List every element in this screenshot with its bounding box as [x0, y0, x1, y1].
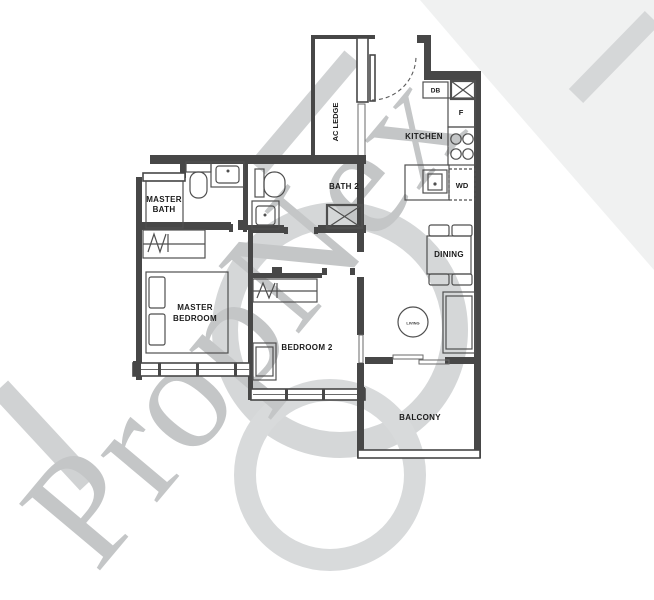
master-bath-label-line1: MASTER	[146, 195, 182, 204]
ac-ledge-label: AC LEDGE	[331, 103, 340, 142]
balcony-label: BALCONY	[399, 413, 441, 422]
balcony-sliding-door-panel	[393, 355, 423, 359]
pillow	[149, 314, 165, 345]
living-label: LIVING	[406, 321, 419, 326]
balcony-walls	[358, 355, 480, 458]
bedroom2-wardrobe-icon	[253, 279, 317, 302]
bedroom2-window	[251, 387, 365, 400]
dining-chair	[429, 225, 449, 236]
hob-icon	[448, 127, 475, 165]
washer-dryer: WD	[449, 169, 475, 200]
entry-wall-pillar	[357, 38, 368, 102]
master-bath-window	[143, 173, 185, 181]
bath2-label: BATH 2	[329, 182, 359, 191]
door-leaf	[370, 55, 375, 101]
kitchen-counter-sink-icon	[405, 165, 449, 200]
washer-dryer-label: WD	[456, 181, 469, 190]
master-bath-toilet-icon	[186, 162, 211, 198]
master-bedroom-window	[133, 361, 250, 376]
fridge-label: F	[459, 108, 464, 117]
master-bath-basin-icon	[211, 162, 244, 187]
vent-box-icon	[451, 81, 475, 99]
coffee-table-icon: LIVING	[398, 307, 428, 337]
kitchen-label: KITCHEN	[405, 132, 443, 141]
bath2-toilet-icon	[255, 169, 285, 197]
fridge: F	[448, 98, 475, 127]
bedroom2-sliding-door	[359, 335, 363, 363]
db-label: DB	[431, 88, 441, 95]
db-box: DB	[423, 82, 448, 98]
master-bath-label-line2: BATH	[153, 205, 176, 214]
master-bed	[146, 272, 228, 353]
dining-chair	[452, 274, 472, 285]
dining-label: DINING	[434, 250, 464, 259]
sofa	[443, 292, 475, 353]
door-swing-arc	[372, 56, 416, 100]
bedroom2-label: BEDROOM 2	[281, 343, 332, 352]
ac-ledge-screen	[358, 104, 365, 157]
floor-plan-image: PropNex	[0, 0, 654, 600]
bath2-basin-icon	[252, 201, 279, 229]
master-bedroom-label-line1: MASTER	[177, 303, 213, 312]
balcony-sliding-door-panel	[419, 360, 449, 364]
dining-chair	[429, 274, 449, 285]
pillow	[149, 277, 165, 308]
dining-chair	[452, 225, 472, 236]
bath2-shower-icon	[327, 205, 362, 228]
bedroom2-desk	[253, 343, 276, 380]
master-wardrobe-icon	[143, 230, 205, 258]
entrance-door	[370, 55, 416, 101]
master-bedroom-label-line2: BEDROOM	[173, 314, 217, 323]
floor-plan-drawing: DB F WD	[0, 0, 654, 600]
